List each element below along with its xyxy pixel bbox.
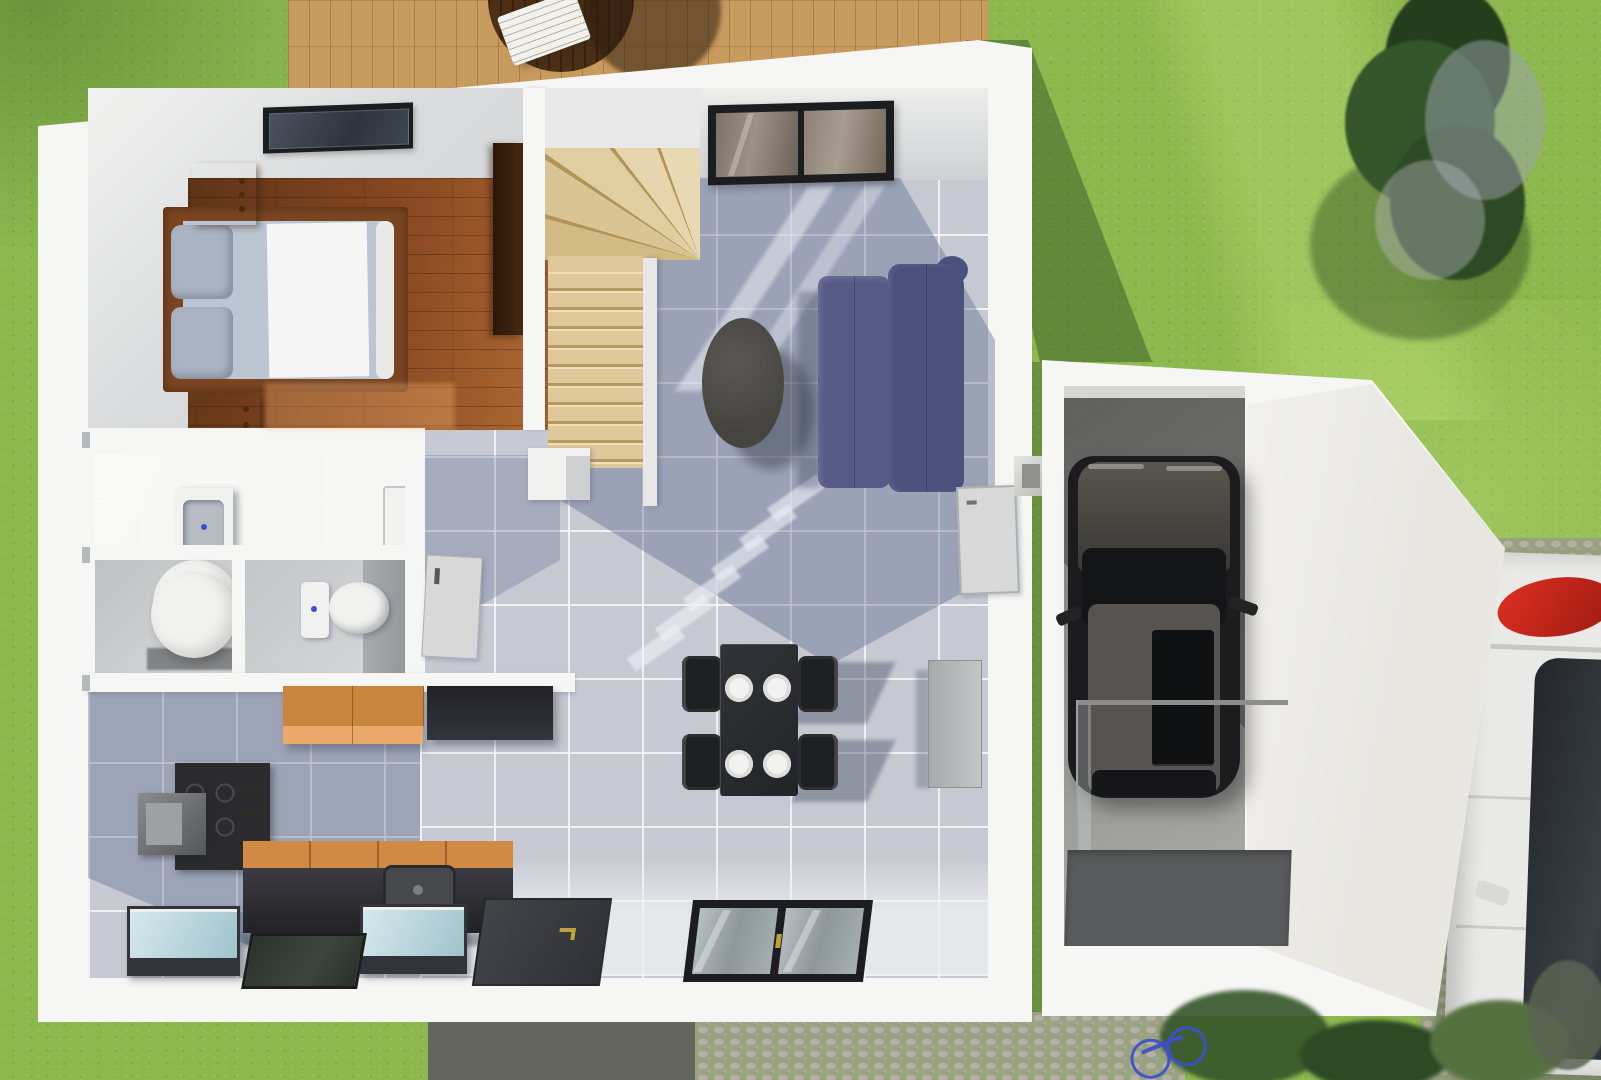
sofa-backrest [888, 264, 964, 492]
dining-chair [682, 734, 722, 790]
bed-footboard [376, 221, 394, 379]
wall-cap [82, 675, 90, 691]
sofa [818, 264, 964, 494]
cabinet-divider [352, 686, 353, 744]
entry-door [472, 898, 612, 986]
winder-staircase-flight [548, 272, 643, 468]
niche-inner [1022, 464, 1040, 488]
cabinet-top [283, 686, 424, 726]
bed-duvet-lit [267, 222, 370, 378]
garage-access-door [956, 485, 1020, 595]
window-glass-pane [804, 109, 886, 175]
window-glass-pane [692, 908, 778, 974]
skylight-glass [269, 109, 409, 150]
appliance-glass-top [360, 904, 467, 974]
wc [245, 560, 405, 675]
living-window-north [708, 101, 894, 186]
nightstand [192, 163, 256, 225]
bicycle [1122, 1000, 1208, 1080]
kitchen-appliance-gray [138, 793, 206, 855]
toilet-flush-button [311, 606, 317, 612]
stair-base-box [528, 448, 590, 500]
door-handle [434, 568, 440, 584]
dining-chair [682, 656, 722, 712]
skylight-window [263, 102, 413, 153]
kitchen-wall-cabinet-orange [283, 686, 423, 744]
black-car-rear-window [1092, 770, 1216, 796]
stairwell-wall [523, 88, 545, 430]
bathroom [95, 455, 408, 545]
wall-utility-wc [232, 560, 245, 675]
tree [1330, 0, 1560, 315]
coffee-table [702, 318, 784, 448]
black-car-roofrail [1088, 464, 1144, 469]
dining-set [676, 644, 906, 796]
bed-pillow [171, 307, 233, 379]
double-bed [163, 207, 408, 392]
window-glass-pane [716, 111, 798, 177]
wc-door-leaf [421, 555, 482, 660]
plate [763, 750, 791, 778]
plate [725, 750, 753, 778]
cobblestone-path-bottom [695, 1012, 1185, 1080]
black-car-sunroof [1152, 630, 1214, 766]
living-window-south [683, 900, 873, 982]
door-handle [967, 500, 977, 504]
bed-pillow [171, 225, 233, 299]
appliance-glass [363, 907, 464, 956]
entry-door-handle [570, 928, 576, 940]
toilet-bowl [329, 582, 389, 634]
bathroom-wall-top [88, 428, 425, 455]
wall-cap [82, 432, 90, 448]
bedroom [88, 88, 545, 430]
cabinet-front [283, 726, 423, 744]
dining-chair [798, 734, 838, 790]
bedroom-sun-patch [265, 383, 455, 430]
stairwell-ceiling [545, 88, 700, 148]
wall-cap [82, 547, 90, 563]
appliance-panel [146, 803, 182, 845]
sink-faucet [413, 885, 423, 895]
stairwell [523, 88, 700, 470]
kitchen-wall-cabinet-black [427, 686, 553, 740]
plate [763, 674, 791, 702]
radiator [928, 660, 982, 788]
black-car [1066, 452, 1246, 802]
wardrobe [493, 143, 523, 335]
black-car-roofrail [1166, 466, 1222, 471]
utility-room [95, 560, 232, 675]
stair-base-side [566, 456, 590, 500]
bush-gray [1528, 960, 1601, 1070]
counter-top-orange [243, 841, 513, 868]
water-heater-body [151, 572, 237, 658]
tree-flowers [1375, 160, 1485, 280]
garage-entry-mat [1064, 850, 1291, 946]
winder-staircase-fan [545, 148, 700, 260]
bathroom-block [88, 428, 425, 692]
sofa-seat [818, 276, 890, 488]
basin-drain [201, 524, 207, 530]
floorplan-scene [0, 0, 1601, 1080]
stair-stringer [643, 258, 657, 506]
dining-chair [798, 656, 838, 712]
plate [725, 674, 753, 702]
appliance-glass [130, 909, 237, 958]
glass-railing-bar [1078, 700, 1288, 705]
floor-window-panel [241, 933, 367, 989]
winder-staircase-landing [548, 256, 643, 272]
driveway-shadowed [428, 1020, 700, 1080]
bathroom-wall-mid [88, 545, 408, 560]
appliance-glass-top [127, 906, 240, 976]
